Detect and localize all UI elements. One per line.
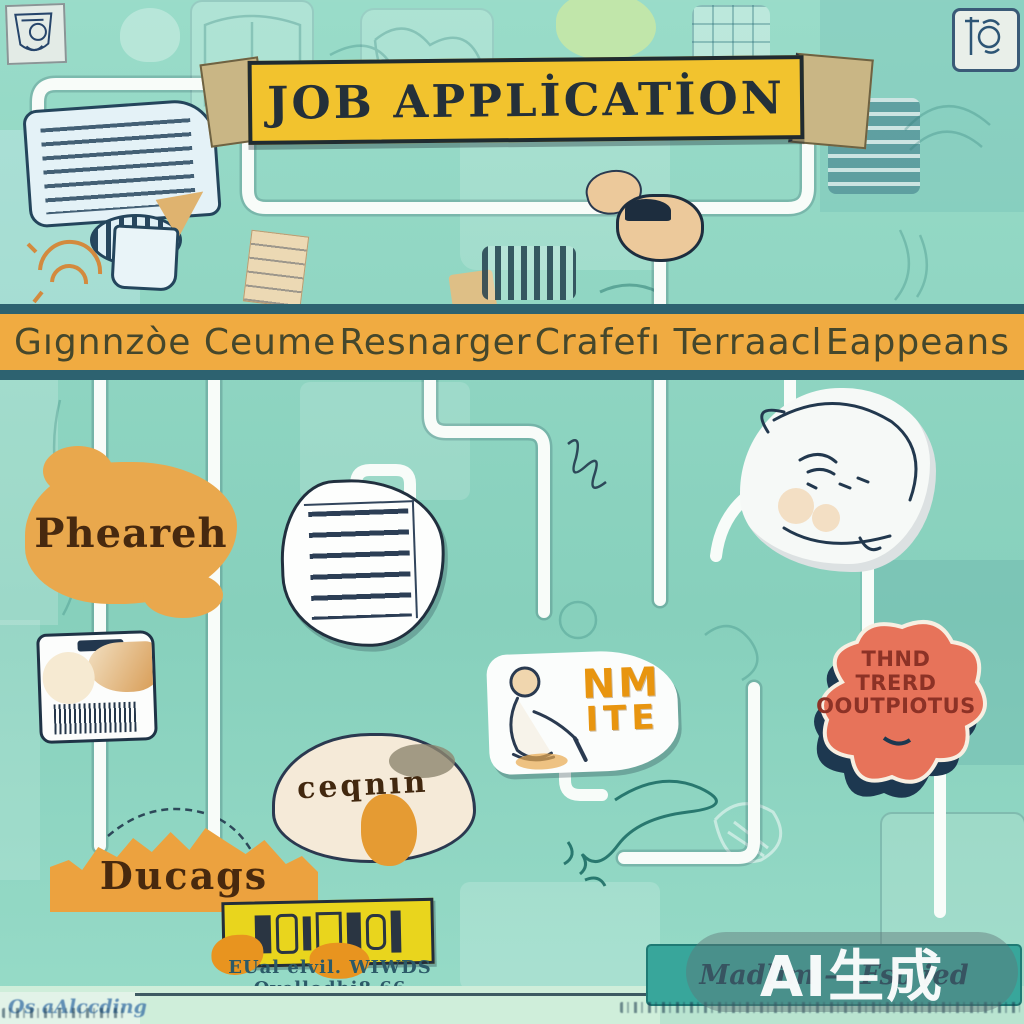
phase-label-2: Resnarger xyxy=(339,322,531,363)
title-banner: JOB APPLİCATİON xyxy=(248,55,805,145)
interview-card: NM ITE xyxy=(486,649,680,776)
splat-line-3: OOUTPIOTUS xyxy=(816,694,976,718)
smudged-microtext xyxy=(2,1008,128,1018)
curled-figure: ceqnın xyxy=(272,733,476,863)
cat-figure-icon xyxy=(740,388,936,572)
barcode-icon xyxy=(54,702,137,735)
outputs-splat: THND TRERD OOUTPIOTUS xyxy=(812,612,992,810)
ai-watermark-badge: AI生成 xyxy=(686,932,1018,1012)
top-right-badge-icon xyxy=(952,8,1020,72)
job-application-infographic: JOB APPLİCATİON Gıgnnzòe Ceume Resnarger… xyxy=(0,0,1024,1024)
top-left-badge-icon xyxy=(5,3,67,65)
ai-watermark-text: AI生成 xyxy=(760,932,944,1013)
phase-label-4: Eappeans xyxy=(826,322,1010,363)
document-lines xyxy=(308,508,412,619)
splat-line-2: TRERD xyxy=(856,671,937,695)
research-blob: Pheareh xyxy=(25,462,237,604)
research-label: Pheareh xyxy=(34,510,227,557)
interview-card-text-2: ITE xyxy=(582,701,662,736)
curled-figure-label: ceqnın xyxy=(296,765,429,807)
mound-label: Ducags xyxy=(100,853,268,898)
footer-rule xyxy=(135,993,655,996)
cup-icon xyxy=(110,224,179,291)
phase-band: Gıgnnzòe Ceume Resnarger Crafefı Terraac… xyxy=(0,304,1024,380)
barcode-card-icon xyxy=(36,630,158,744)
phase-label-1: Gıgnnzòe Ceume xyxy=(14,322,336,363)
page-title: JOB APPLİCATİON xyxy=(267,71,785,129)
phase-label-3: Crafefı Terraacl xyxy=(535,322,823,363)
peeking-head-icon xyxy=(616,194,704,262)
splat-line-1: THND xyxy=(862,647,931,671)
